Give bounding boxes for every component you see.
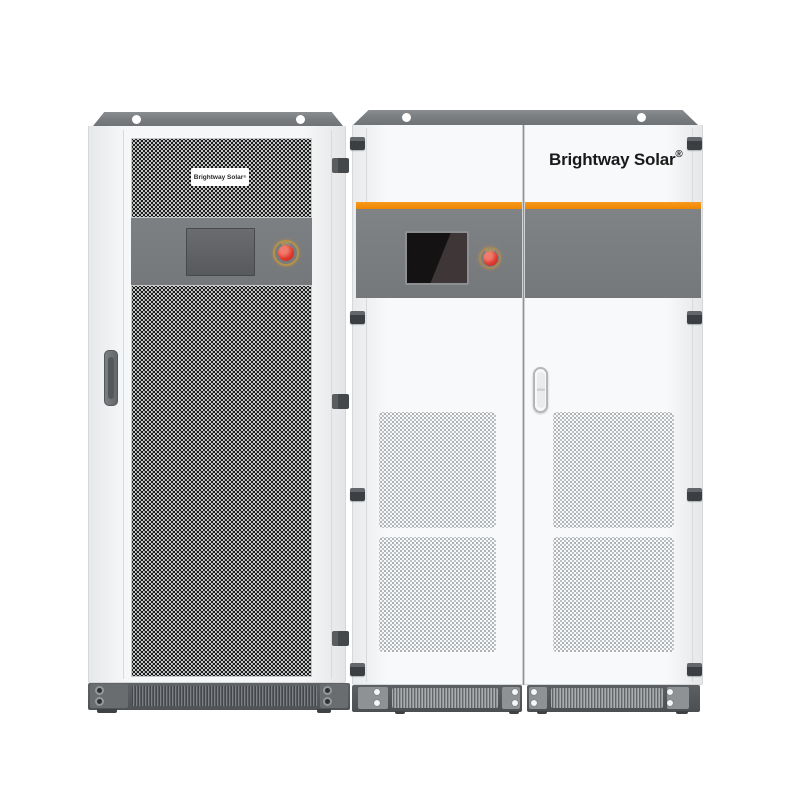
right-cabinet-top-cap [353,110,698,125]
right-door-vent-upper [553,412,674,528]
screw-icon [374,689,380,695]
right-cabinet-frame-seam [366,128,367,682]
right-cabinet: Brightway Solar® EPO [0,0,800,800]
door-hinge [350,663,365,676]
screw-icon [512,689,518,695]
brand-text: Brightway Solar [549,150,675,169]
right-cabinet-control-panel: EPO [356,209,701,298]
door-hinge [687,137,702,150]
screw-icon [512,700,518,706]
base-bolt-plate [320,684,348,708]
left-cabinet-base [88,683,350,710]
screw-icon [531,689,537,695]
lifting-hole-icon [637,113,646,122]
door-hinge [687,488,702,501]
base-vent-ribs [132,686,318,706]
product-photo-energy-storage-cabinets: Brightway Solar® EPO [0,0,800,800]
accent-stripe [356,202,701,209]
cabinet-foot [395,711,405,714]
epo-label: EPO [482,248,497,253]
emergency-stop-button [278,245,294,261]
left-cabinet-frame-seam [331,130,332,679]
base-bolt-plate [502,687,520,709]
right-cabinet-door-handle [533,367,548,413]
base-bolt-plate [90,684,128,708]
screw-icon [667,689,673,695]
door-hinge [350,137,365,150]
door-hinge [350,488,365,501]
left-cabinet: Brightway Solar® EPO [0,0,800,800]
base-bolt-plate [667,687,689,709]
left-cabinet-latch [332,394,349,409]
screw-icon [667,700,673,706]
right-cabinet-base-left [352,685,522,712]
left-cabinet-latch [332,158,349,173]
left-cabinet-frame-seam [123,130,124,679]
brand-label-text: Brightway Solar [194,174,243,181]
left-cabinet-handle [104,350,118,406]
right-cabinet-base-right [527,685,700,712]
base-vent-ribs [392,688,498,708]
left-cabinet-control-panel: EPO [131,218,312,285]
control-display-screen [405,231,469,285]
base-vent-ribs [551,688,663,708]
right-cabinet-body: Brightway Solar® EPO [352,125,703,685]
lifting-hole-icon [132,115,141,124]
handle-slot [108,357,114,399]
door-seam [522,125,525,685]
door-hinge [687,663,702,676]
cabinet-foot [676,711,688,714]
left-cabinet-body [88,126,346,683]
left-door-vent-lower [379,537,496,652]
screw-icon [374,700,380,706]
right-cabinet-frame-seam [692,128,693,682]
cabinet-foot [509,711,519,714]
left-cabinet-latch [332,631,349,646]
screw-icon [323,697,332,706]
left-cabinet-mesh-upper: Brightway Solar® [131,138,312,218]
cabinet-foot [537,711,547,714]
screw-icon [531,700,537,706]
cabinet-foot [317,709,331,713]
epo-label: EPO [277,241,296,246]
left-door-vent-upper [379,412,496,528]
cabinet-foot [97,709,117,713]
emergency-stop-button [483,251,498,266]
screw-icon [95,697,104,706]
lifting-hole-icon [296,115,305,124]
left-cabinet-top-cap [93,112,343,126]
lifting-hole-icon [402,113,411,122]
screw-icon [95,686,104,695]
epo-button-ring: EPO [273,240,299,266]
screw-icon [323,686,332,695]
left-cabinet-mesh-lower [131,285,312,677]
base-bolt-plate [529,687,547,709]
epo-button-ring: EPO [479,247,501,269]
door-hinge [350,311,365,324]
control-display-screen [186,228,255,276]
brand-label-plate: Brightway Solar® [191,168,249,186]
door-hinge [687,311,702,324]
registered-mark: ® [675,149,682,160]
right-door-vent-lower [553,537,674,652]
base-bolt-plate [358,687,388,709]
brand-logo: Brightway Solar® [549,149,683,170]
handle-recess [537,372,545,408]
